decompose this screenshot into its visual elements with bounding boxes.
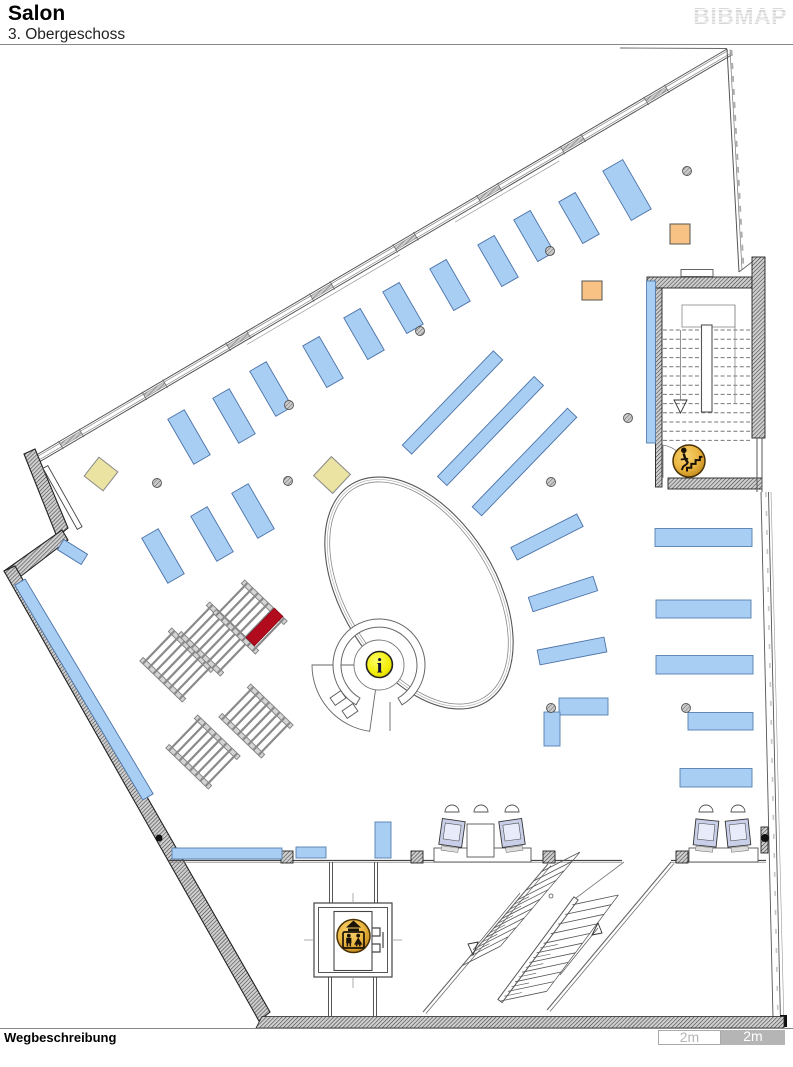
svg-text:i: i <box>377 654 383 678</box>
